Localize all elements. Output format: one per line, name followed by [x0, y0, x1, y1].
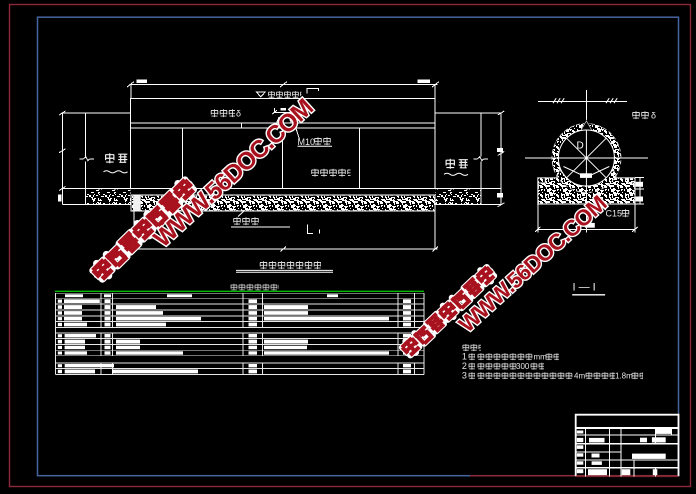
svg-text:δ: δ	[236, 109, 241, 119]
svg-text:1.8m: 1.8m	[615, 371, 633, 380]
svg-text:δ: δ	[651, 111, 656, 121]
svg-text:D: D	[577, 141, 584, 152]
svg-text:M10: M10	[298, 137, 316, 147]
svg-text:3: 3	[462, 371, 467, 381]
svg-text:I — I: I — I	[573, 282, 596, 294]
svg-text:1: 1	[462, 352, 467, 362]
svg-text:2: 2	[462, 361, 467, 371]
svg-text:4m: 4m	[574, 371, 585, 380]
svg-text:300: 300	[516, 362, 530, 371]
